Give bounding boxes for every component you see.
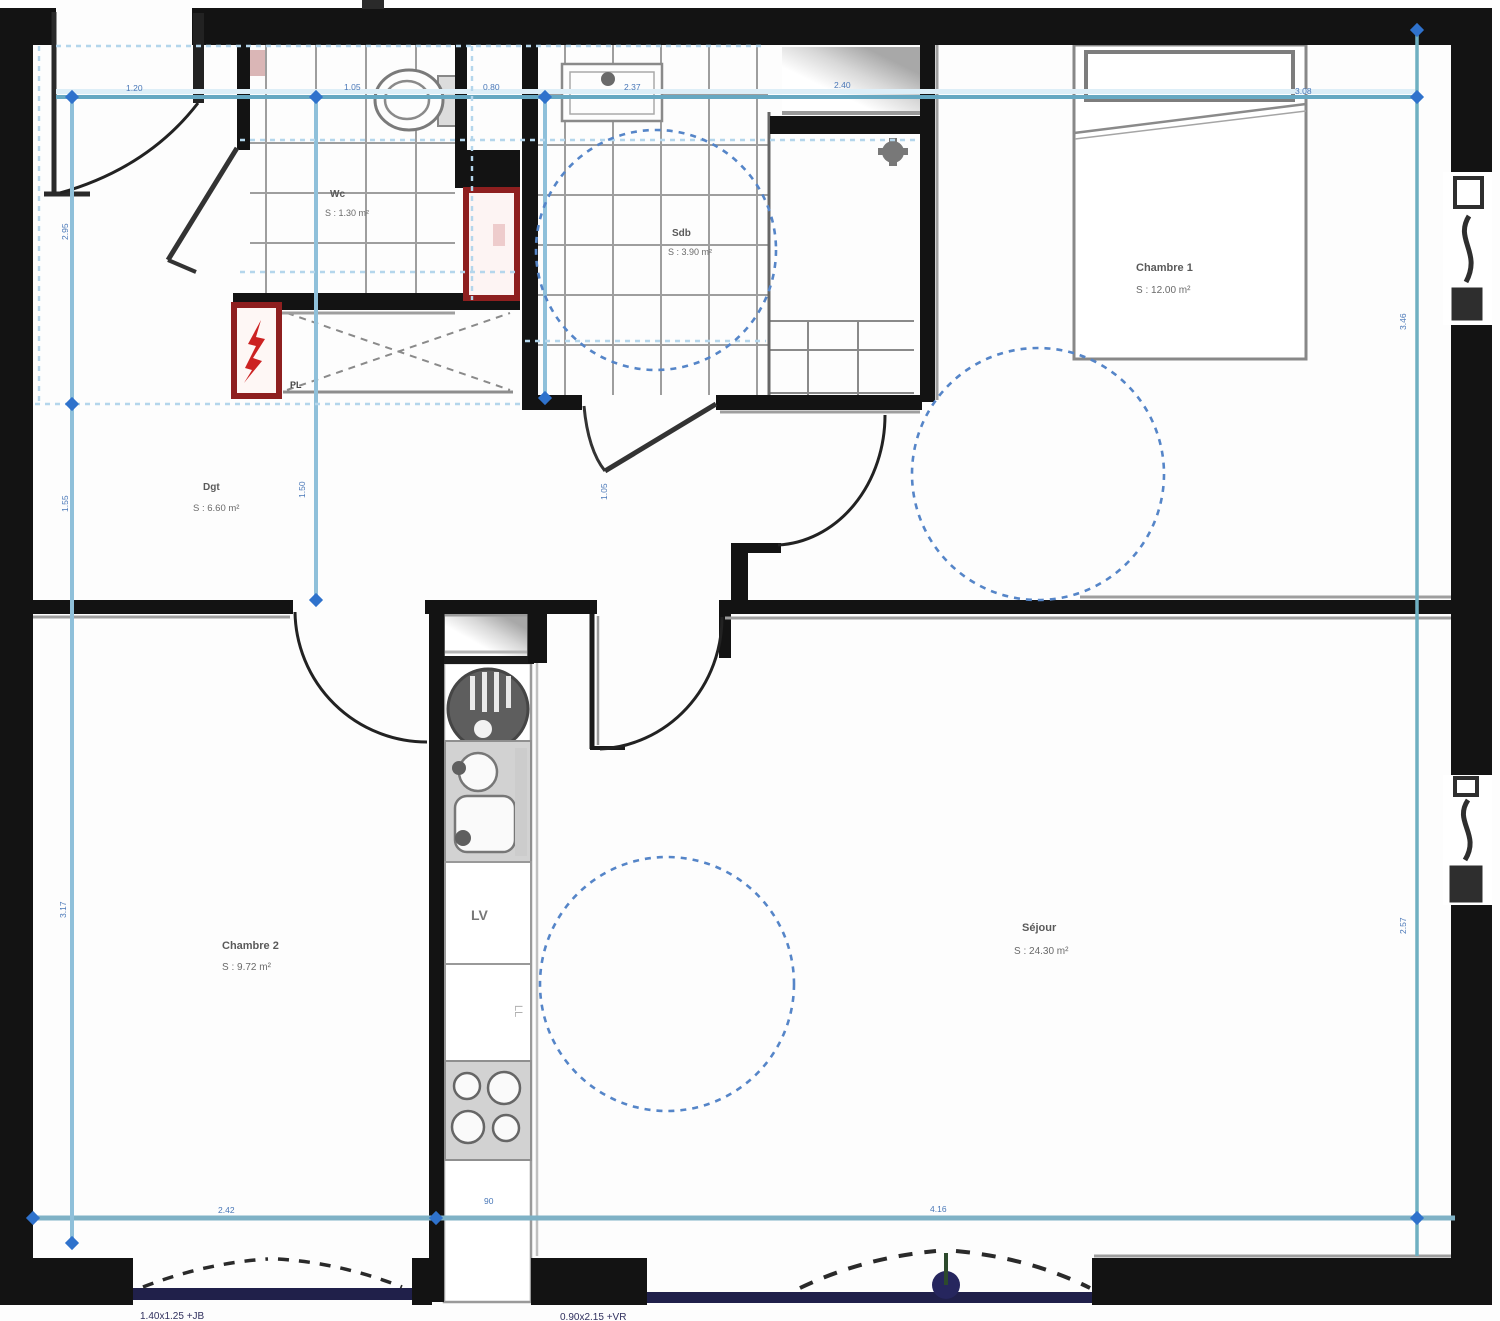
svg-text:1.50: 1.50 xyxy=(297,481,307,498)
svg-text:2.37: 2.37 xyxy=(624,82,641,92)
svg-text:S : 12.00 m²: S : 12.00 m² xyxy=(1136,285,1191,296)
svg-text:1.40x1.25 +JB: 1.40x1.25 +JB xyxy=(140,1311,205,1321)
svg-text:Séjour: Séjour xyxy=(1022,922,1057,934)
svg-text:1.55: 1.55 xyxy=(60,495,70,512)
svg-text:0.80: 0.80 xyxy=(483,82,500,92)
svg-text:LV: LV xyxy=(471,907,489,923)
svg-text:3.17: 3.17 xyxy=(58,901,68,918)
svg-text:4.16: 4.16 xyxy=(930,1204,947,1214)
svg-text:3.46: 3.46 xyxy=(1398,313,1408,330)
svg-text:Chambre 2: Chambre 2 xyxy=(222,940,279,952)
svg-text:Dgt: Dgt xyxy=(203,482,220,493)
svg-text:LL: LL xyxy=(512,1005,524,1017)
svg-text:0.90x2.15 +VR: 0.90x2.15 +VR xyxy=(560,1312,626,1321)
svg-text:2.40: 2.40 xyxy=(834,80,851,90)
svg-text:S : 24.30 m²: S : 24.30 m² xyxy=(1014,946,1069,957)
svg-text:2.57: 2.57 xyxy=(1398,917,1408,934)
svg-text:S : 6.60 m²: S : 6.60 m² xyxy=(193,503,239,514)
svg-text:S : 3.90 m²: S : 3.90 m² xyxy=(668,247,712,257)
svg-text:Chambre 1: Chambre 1 xyxy=(1136,262,1193,274)
svg-text:1.05: 1.05 xyxy=(344,82,361,92)
svg-text:2.95: 2.95 xyxy=(60,223,70,240)
svg-text:S : 9.72 m²: S : 9.72 m² xyxy=(222,962,272,973)
svg-text:Wc: Wc xyxy=(330,189,345,200)
svg-text:1.20: 1.20 xyxy=(126,83,143,93)
svg-text:S : 1.30 m²: S : 1.30 m² xyxy=(325,208,369,218)
svg-text:Sdb: Sdb xyxy=(672,228,691,239)
svg-text:1.05: 1.05 xyxy=(599,483,609,500)
svg-text:PL: PL xyxy=(290,380,302,390)
svg-text:2.42: 2.42 xyxy=(218,1205,235,1215)
svg-text:90: 90 xyxy=(484,1196,494,1206)
svg-text:3.08: 3.08 xyxy=(1295,86,1312,96)
